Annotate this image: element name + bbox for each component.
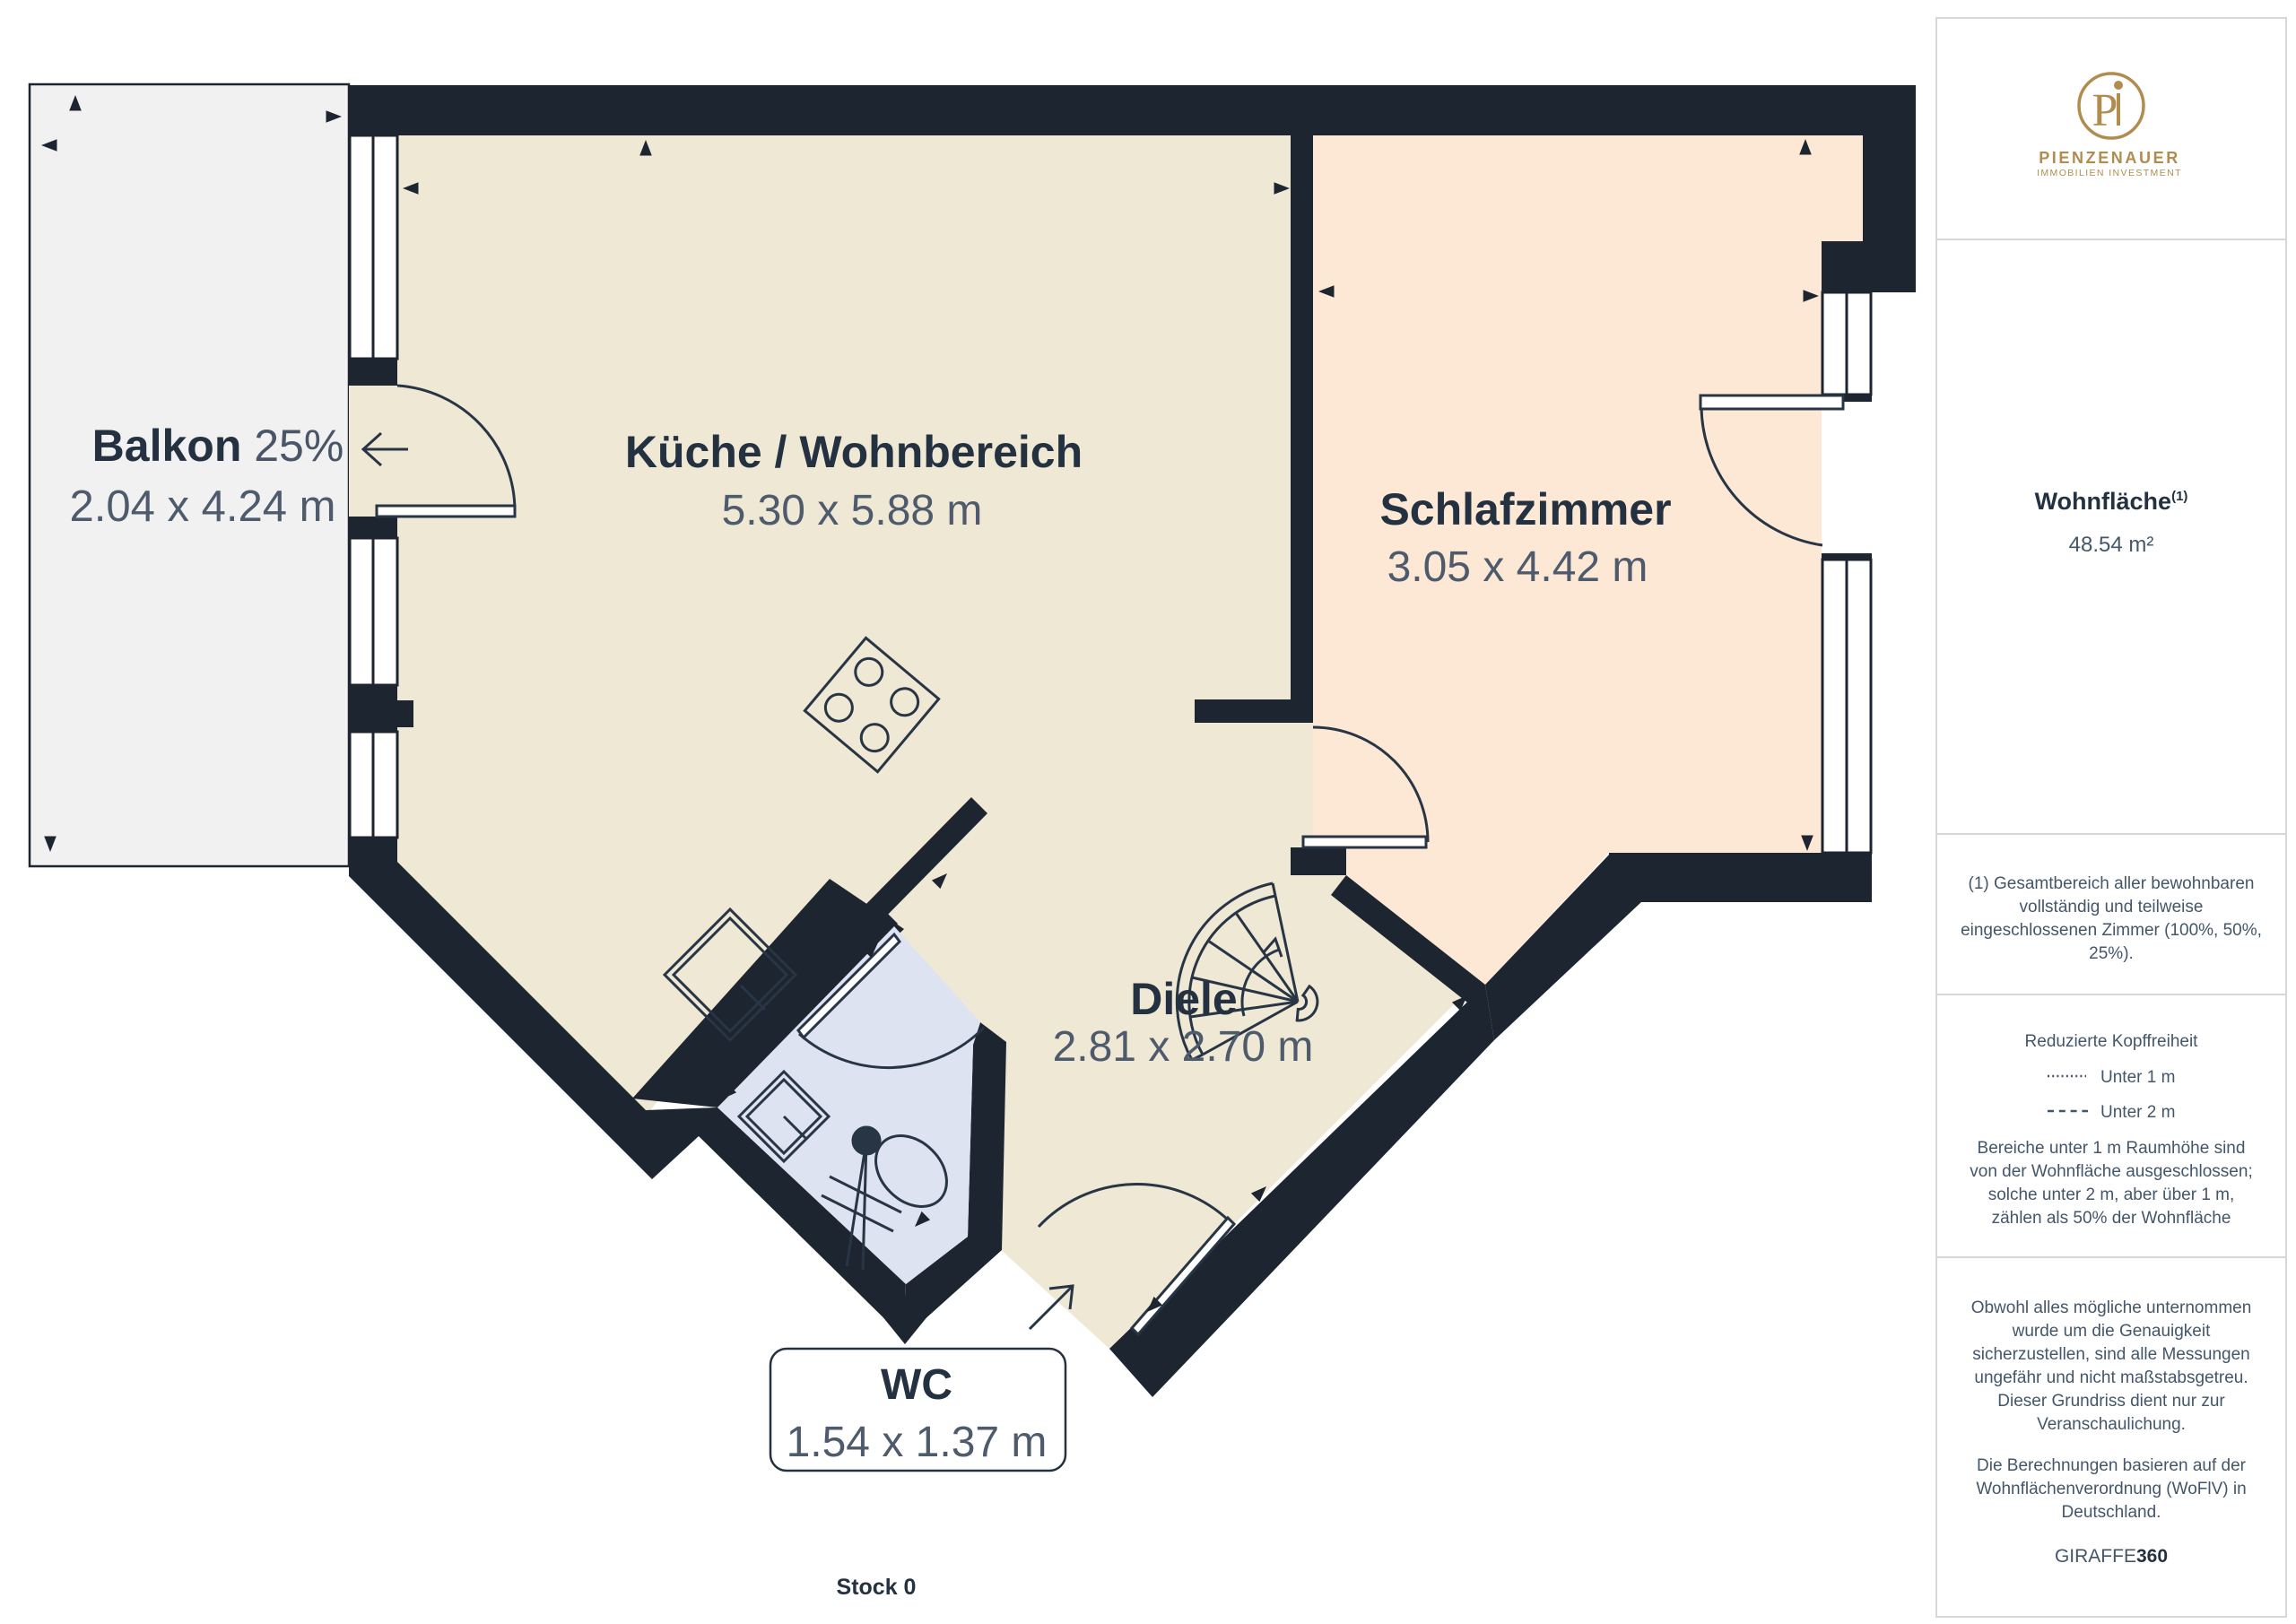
svg-text:Schlafzimmer: Schlafzimmer (1379, 484, 1671, 534)
svg-text:Küche / Wohnbereich: Küche / Wohnbereich (625, 427, 1083, 477)
svg-text:48.54 m²: 48.54 m² (2069, 533, 2154, 557)
svg-text:PIENZENAUER: PIENZENAUER (2039, 149, 2180, 167)
svg-text:zählen als 50% der Wohnfläche: zählen als 50% der Wohnfläche (1992, 1209, 2231, 1228)
svg-text:25%).: 25%). (2089, 944, 2134, 963)
svg-text:5.30 x 5.88 m: 5.30 x 5.88 m (722, 487, 983, 534)
svg-text:Reduzierte Kopffreiheit: Reduzierte Kopffreiheit (2025, 1032, 2199, 1051)
svg-text:3.05 x 4.42 m: 3.05 x 4.42 m (1387, 543, 1648, 591)
svg-text:GIRAFFE360: GIRAFFE360 (2055, 1546, 2168, 1567)
svg-text:Stock 0: Stock 0 (837, 1575, 917, 1600)
svg-text:wurde um die Genauigkeit: wurde um die Genauigkeit (2012, 1322, 2211, 1341)
svg-text:eingeschlossenen Zimmer (100%,: eingeschlossenen Zimmer (100%, 50%, (1961, 921, 2262, 940)
svg-text:sicherzustellen, sind alle Mes: sicherzustellen, sind alle Messungen (1972, 1345, 2249, 1364)
svg-text:Bereiche unter 1 m Raumhöhe si: Bereiche unter 1 m Raumhöhe sind (1978, 1139, 2246, 1158)
svg-text:Unter 2 m: Unter 2 m (2100, 1103, 2175, 1122)
svg-text:Obwohl alles mögliche unternom: Obwohl alles mögliche unternommen (1971, 1298, 2252, 1317)
svg-text:2.81 x 2.70 m: 2.81 x 2.70 m (1053, 1023, 1314, 1071)
svg-text:Die Berechnungen basieren auf: Die Berechnungen basieren auf der (1977, 1456, 2247, 1475)
svg-text:solche unter 2 m, aber über 1: solche unter 2 m, aber über 1 m, (1988, 1185, 2235, 1204)
svg-text:Diele: Diele (1130, 974, 1238, 1024)
svg-text:Wohnflächenverordnung (WoFlV): Wohnflächenverordnung (WoFlV) in (1976, 1480, 2246, 1498)
svg-text:Deutschland.: Deutschland. (2062, 1503, 2161, 1522)
svg-text:P: P (2092, 85, 2118, 136)
svg-text:Veranschaulichung.: Veranschaulichung. (2037, 1415, 2186, 1434)
svg-text:1.54 x 1.37 m: 1.54 x 1.37 m (787, 1419, 1048, 1466)
svg-text:IMMOBILIEN INVESTMENT: IMMOBILIEN INVESTMENT (2037, 168, 2182, 178)
svg-text:Dieser Grundriss dient nur zur: Dieser Grundriss dient nur zur (1997, 1392, 2225, 1411)
svg-text:2.04 x 4.24 m: 2.04 x 4.24 m (70, 482, 336, 531)
svg-text:ungefähr und nicht maßstabsget: ungefähr und nicht maßstabsgetreu. (1974, 1368, 2248, 1387)
svg-text:Wohnfläche(1): Wohnfläche(1) (2035, 488, 2188, 515)
svg-text:WC: WC (881, 1361, 952, 1409)
svg-text:Balkon 25%: Balkon 25% (92, 421, 344, 471)
svg-text:vollständig und teilweise: vollständig und teilweise (2020, 898, 2204, 916)
svg-text:(1) Gesamtbereich aller bewohn: (1) Gesamtbereich aller bewohnbaren (1969, 874, 2255, 893)
svg-text:Unter 1 m: Unter 1 m (2100, 1068, 2175, 1087)
svg-text:von der Wohnfläche ausgeschlos: von der Wohnfläche ausgeschlossen; (1970, 1162, 2252, 1181)
